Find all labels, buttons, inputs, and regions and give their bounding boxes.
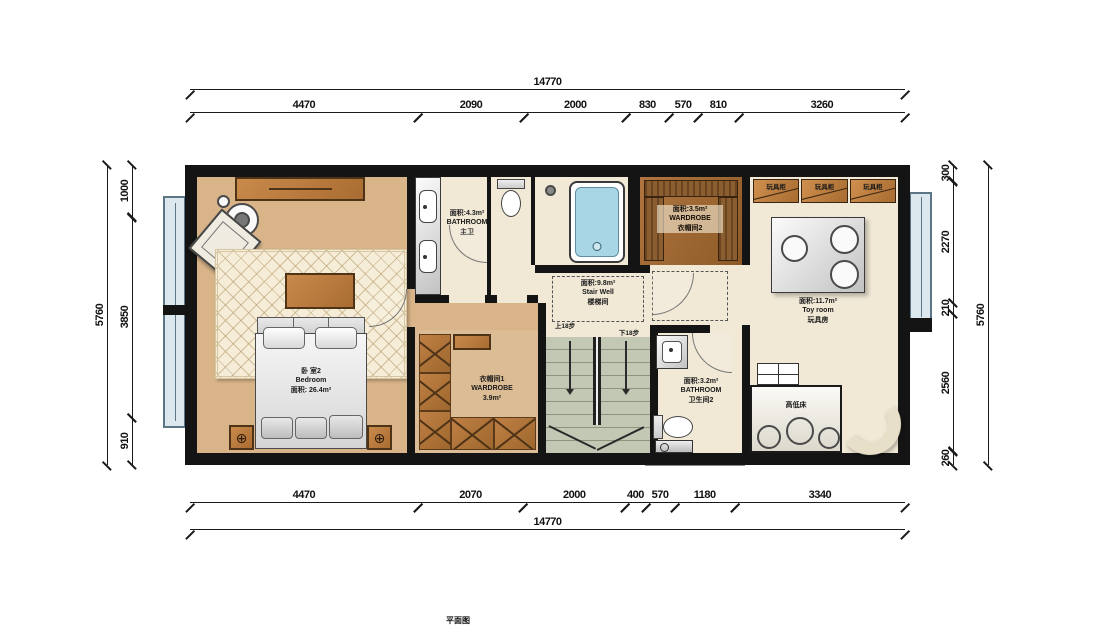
- toy-room-area: 面积:11.7m²: [783, 297, 853, 306]
- toilet: [501, 190, 521, 217]
- dim-value: 2070: [459, 489, 481, 501]
- shower-head-icon: [545, 185, 556, 196]
- bathroom2-area: 面积:3.2m²: [665, 377, 737, 386]
- bed-cushion: [295, 417, 327, 439]
- table-seat: [781, 235, 808, 262]
- dim-segment: 3850: [132, 217, 146, 418]
- dim-segment: 4470: [190, 489, 418, 503]
- dim-value: 2270: [940, 231, 952, 253]
- dim-segment: 400: [625, 489, 645, 503]
- toy-room-name-cn: 玩具房: [783, 316, 853, 325]
- stair-rail: [593, 337, 601, 425]
- bathroom2-name-cn: 卫生间2: [665, 396, 737, 405]
- washing-machine: [655, 440, 693, 453]
- bedroom-table: [285, 273, 355, 309]
- dim-segment: 1000: [132, 165, 146, 217]
- wardrobe1-cabinet-row: [451, 417, 536, 450]
- dim-value: 3260: [811, 99, 833, 111]
- bedroom-name-en: Bedroom: [255, 376, 367, 385]
- bed-pillow: [263, 327, 305, 349]
- dim-value: 4470: [293, 489, 315, 501]
- dim-segment: 570: [646, 489, 675, 503]
- wall: [407, 177, 415, 289]
- dim-segment: 2000: [523, 489, 625, 503]
- lamp-small-icon: [217, 195, 230, 208]
- wall: [415, 295, 449, 303]
- master-bath-area: 面积:4.3m²: [441, 209, 493, 218]
- toy-cabinet-label: 玩具柜: [802, 184, 846, 193]
- dim-top-segments: 4470209020008305708103260: [190, 99, 905, 113]
- stair-direction-arrow: [625, 341, 627, 393]
- window-right: [909, 192, 932, 322]
- floor-plan-canvas: 14770 4470209020008305708103260 44702070…: [0, 0, 1115, 636]
- stairwell-name-cn: 楼梯间: [552, 298, 644, 307]
- corridor-floor: [415, 303, 538, 330]
- stairwell-area: 面积:9.8m²: [552, 279, 644, 288]
- bathroom2-sink-cabinet: [656, 335, 688, 369]
- wardrobe2-shelf-top: [644, 180, 738, 197]
- bathroom2-name-en: BATHROOM: [665, 386, 737, 395]
- room-label-stairwell: 面积:9.8m² Stair Well 楼梯间: [552, 279, 644, 307]
- bunk-bed: 高低床: [750, 385, 842, 453]
- bedroom-area: 面积: 26.4m²: [255, 386, 367, 395]
- dim-left-segments: 10003850910: [132, 165, 146, 465]
- dim-value: 3850: [119, 306, 131, 328]
- dim-value: 260: [940, 450, 952, 467]
- bathtub: [569, 181, 625, 263]
- bed-pillow: [315, 327, 357, 349]
- wall-pier-right: [909, 318, 932, 332]
- sink: [419, 240, 437, 273]
- dim-top-overall: 14770: [190, 76, 905, 90]
- dim-value: 2090: [460, 99, 482, 111]
- toy-cabinet-row: 玩具柜 玩具柜 玩具柜: [753, 179, 896, 203]
- dim-value: 1180: [694, 489, 716, 501]
- toy-cabinet-label: 玩具柜: [754, 184, 798, 193]
- dim-value: 910: [119, 433, 131, 450]
- drawing-caption: 平面图: [418, 615, 498, 626]
- wardrobe1-dresser: [453, 334, 491, 350]
- wall: [407, 327, 415, 453]
- room-label-wardrobe2: 面积:3.5m² WARDROBE 衣帽间2: [657, 205, 723, 233]
- dim-segment: 3340: [735, 489, 905, 503]
- table-seat: [830, 225, 859, 254]
- bedroom-top-cabinet: [235, 177, 365, 201]
- dim-value: 830: [639, 99, 656, 111]
- wall: [485, 295, 497, 303]
- dim-segment: 300: [953, 165, 967, 181]
- dim-segment: 14770: [190, 516, 905, 530]
- sink: [419, 190, 437, 223]
- dim-value: 210: [940, 300, 952, 317]
- dim-segment: 5760: [988, 165, 1002, 465]
- room-label-wardrobe1: 衣帽间1 WARDROBE 3.9m²: [453, 375, 531, 403]
- dim-value: 5760: [94, 304, 106, 326]
- dim-segment: 830: [626, 99, 668, 113]
- nightstand: ⊕: [367, 425, 392, 450]
- dim-segment: 210: [953, 303, 967, 314]
- dim-value: 2000: [564, 99, 586, 111]
- wardrobe1-area: 3.9m²: [453, 394, 531, 403]
- dim-value: 14770: [533, 76, 561, 88]
- dim-segment: 2070: [418, 489, 523, 503]
- toy-room-name-en: Toy room: [783, 306, 853, 315]
- wardrobe1-cabinet-column: [419, 334, 451, 450]
- wardrobe1-name-en: WARDROBE: [453, 384, 531, 393]
- bunk-bed-label: 高低床: [752, 401, 840, 410]
- wardrobe2-area: 面积:3.5m²: [657, 205, 723, 214]
- stair-direction-arrow: [569, 341, 571, 393]
- dim-value: 14770: [533, 516, 561, 528]
- wall: [538, 303, 546, 453]
- dim-value: 3340: [809, 489, 831, 501]
- stair-up-label: 上18步: [547, 323, 583, 332]
- wardrobe2-name-en: WARDROBE: [657, 214, 723, 223]
- table-seat: [830, 260, 859, 289]
- wardrobe1-name-cn: 衣帽间1: [453, 375, 531, 384]
- wall-pier-left: [163, 305, 186, 315]
- room-label-bathroom2: 面积:3.2m² BATHROOM 卫生间2: [665, 377, 737, 405]
- dim-segment: 1180: [675, 489, 735, 503]
- dim-segment: 260: [953, 451, 967, 465]
- toilet2: [663, 416, 693, 438]
- dim-segment: 810: [698, 99, 739, 113]
- dim-value: 570: [675, 99, 692, 111]
- toy-cabinet: 玩具柜: [801, 179, 847, 203]
- bed-cushion: [261, 417, 293, 439]
- wall-partition: [487, 177, 491, 295]
- dim-value: 2000: [563, 489, 585, 501]
- dim-right-segments: 30022702102560260: [953, 165, 967, 465]
- room-label-bedroom: 卧 室2 Bedroom 面积: 26.4m²: [255, 367, 367, 395]
- dim-segment: 14770: [190, 76, 905, 90]
- room-label-toy-room: 面积:11.7m² Toy room 玩具房: [783, 297, 853, 325]
- dim-segment: 2560: [953, 314, 967, 451]
- dim-segment: 570: [669, 99, 698, 113]
- wall: [527, 295, 538, 303]
- dim-bottom-segments: 44702070200040057011803340: [190, 489, 905, 503]
- wall: [650, 325, 710, 333]
- dim-segment: 3260: [739, 99, 905, 113]
- toilet2-tank: [653, 415, 663, 439]
- stairwell-name-en: Stair Well: [552, 288, 644, 297]
- dim-segment: 910: [132, 418, 146, 465]
- dim-segment: 2270: [953, 181, 967, 303]
- toy-cabinet: 玩具柜: [753, 179, 799, 203]
- wardrobe2-name-cn: 衣帽间2: [657, 224, 723, 233]
- dim-value: 400: [627, 489, 644, 501]
- wall: [742, 177, 750, 265]
- dim-value: 1000: [119, 180, 131, 202]
- dim-value: 5760: [975, 304, 987, 326]
- toy-cabinet: 玩具柜: [850, 179, 896, 203]
- wall: [742, 325, 750, 453]
- dim-segment: 2000: [524, 99, 626, 113]
- nightstand: ⊕: [229, 425, 254, 450]
- wall-partition: [531, 177, 535, 265]
- dim-value: 4470: [293, 99, 315, 111]
- wall: [628, 177, 640, 273]
- door-arc-bathroom2: [692, 333, 732, 373]
- plan-outline: 卧 室2 Bedroom 面积: 26.4m² ⊕ ⊕ 面积:4.3m² BAT…: [185, 165, 910, 465]
- dim-value: 570: [652, 489, 669, 501]
- bedroom-name-cn: 卧 室2: [255, 367, 367, 376]
- dim-segment: 4470: [190, 99, 418, 113]
- dim-right-overall: 5760: [988, 165, 1002, 465]
- dim-bottom-overall: 14770: [190, 516, 905, 530]
- bed-cushion: [329, 415, 363, 439]
- dim-value: 810: [710, 99, 727, 111]
- toilet-tank: [497, 179, 525, 189]
- toy-cabinet-label: 玩具柜: [851, 184, 895, 193]
- curved-chair: [835, 389, 905, 459]
- side-table: [757, 363, 799, 385]
- dim-segment: 2090: [418, 99, 525, 113]
- dim-value: 2560: [940, 371, 952, 393]
